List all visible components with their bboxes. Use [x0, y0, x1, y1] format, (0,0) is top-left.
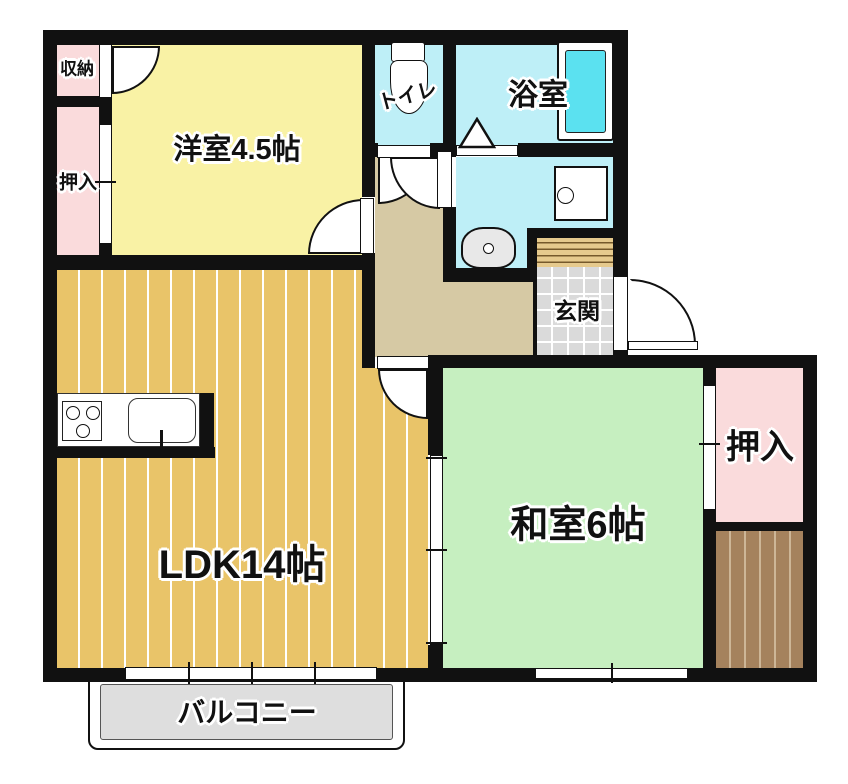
door-tick [699, 443, 720, 445]
western-room-door [360, 198, 374, 254]
shoe-cabinet [537, 237, 615, 267]
window-tick [251, 662, 253, 684]
entrance-door-swing [630, 279, 696, 345]
wall [43, 96, 100, 107]
closet-left-sliding-door [99, 124, 112, 244]
wall [443, 30, 456, 157]
balcony-label: バルコニー [177, 691, 316, 731]
kitchen-counter-edge [200, 393, 214, 458]
entrance-door-open-leaf [628, 341, 698, 350]
burner [76, 424, 90, 438]
closet-right-label: 押入 [726, 420, 794, 469]
door-tick [426, 549, 447, 551]
wall [43, 30, 57, 682]
wall [716, 522, 803, 531]
ldk-floor [57, 270, 362, 668]
wall [613, 30, 628, 237]
closet-left-label: 押入 [59, 168, 97, 195]
bathroom-label: 浴室 [508, 70, 568, 114]
wall [362, 143, 378, 157]
wall [443, 268, 533, 282]
window-tick [314, 662, 316, 684]
wall [703, 510, 716, 668]
faucet [160, 430, 163, 447]
closet-right-sliding-door [703, 385, 716, 510]
toilet-icon [391, 42, 425, 62]
burner [66, 406, 80, 420]
deck-floor [716, 530, 803, 668]
wall [527, 230, 537, 270]
wall [362, 30, 375, 197]
ldk-label: LDK14帖 [159, 532, 326, 590]
folding-door-icon [458, 117, 496, 149]
wall [803, 355, 817, 682]
door-tick [426, 642, 447, 644]
wall [362, 253, 375, 368]
window-tick [188, 662, 190, 684]
japanese-room-label: 和室6帖 [510, 494, 645, 549]
wall [428, 355, 443, 455]
wall [527, 228, 628, 238]
wall [43, 255, 373, 270]
door-tick [426, 457, 447, 459]
burner [86, 406, 100, 420]
wall [518, 143, 628, 157]
wall [533, 270, 537, 357]
door-tick [95, 181, 116, 183]
kitchen-counter-edge [45, 447, 215, 458]
toilet-door [377, 145, 431, 158]
window-tick [611, 663, 613, 683]
western-room-label: 洋室4.5帖 [173, 126, 300, 168]
wall [443, 355, 817, 368]
wall [613, 237, 628, 277]
wall [43, 30, 628, 45]
hallway-floor-ext [443, 280, 537, 357]
wall [703, 368, 716, 385]
wall [428, 645, 443, 668]
entrance-door-gap [613, 276, 628, 351]
entrance-label: 玄関 [554, 292, 600, 326]
bathtub-inner [565, 50, 606, 133]
wall [99, 96, 112, 124]
washing-machine-door [557, 187, 574, 204]
washbasin-drain [483, 243, 494, 254]
floor-plan: 収納 押入 洋室4.5帖 トイレ 浴室 玄関 LDK14帖 和室6帖 押入 バル… [0, 0, 848, 784]
storage-label: 収納 [60, 55, 94, 80]
washroom-door [437, 151, 452, 208]
hall-ldk-door [377, 356, 429, 369]
storage-door [99, 44, 112, 98]
